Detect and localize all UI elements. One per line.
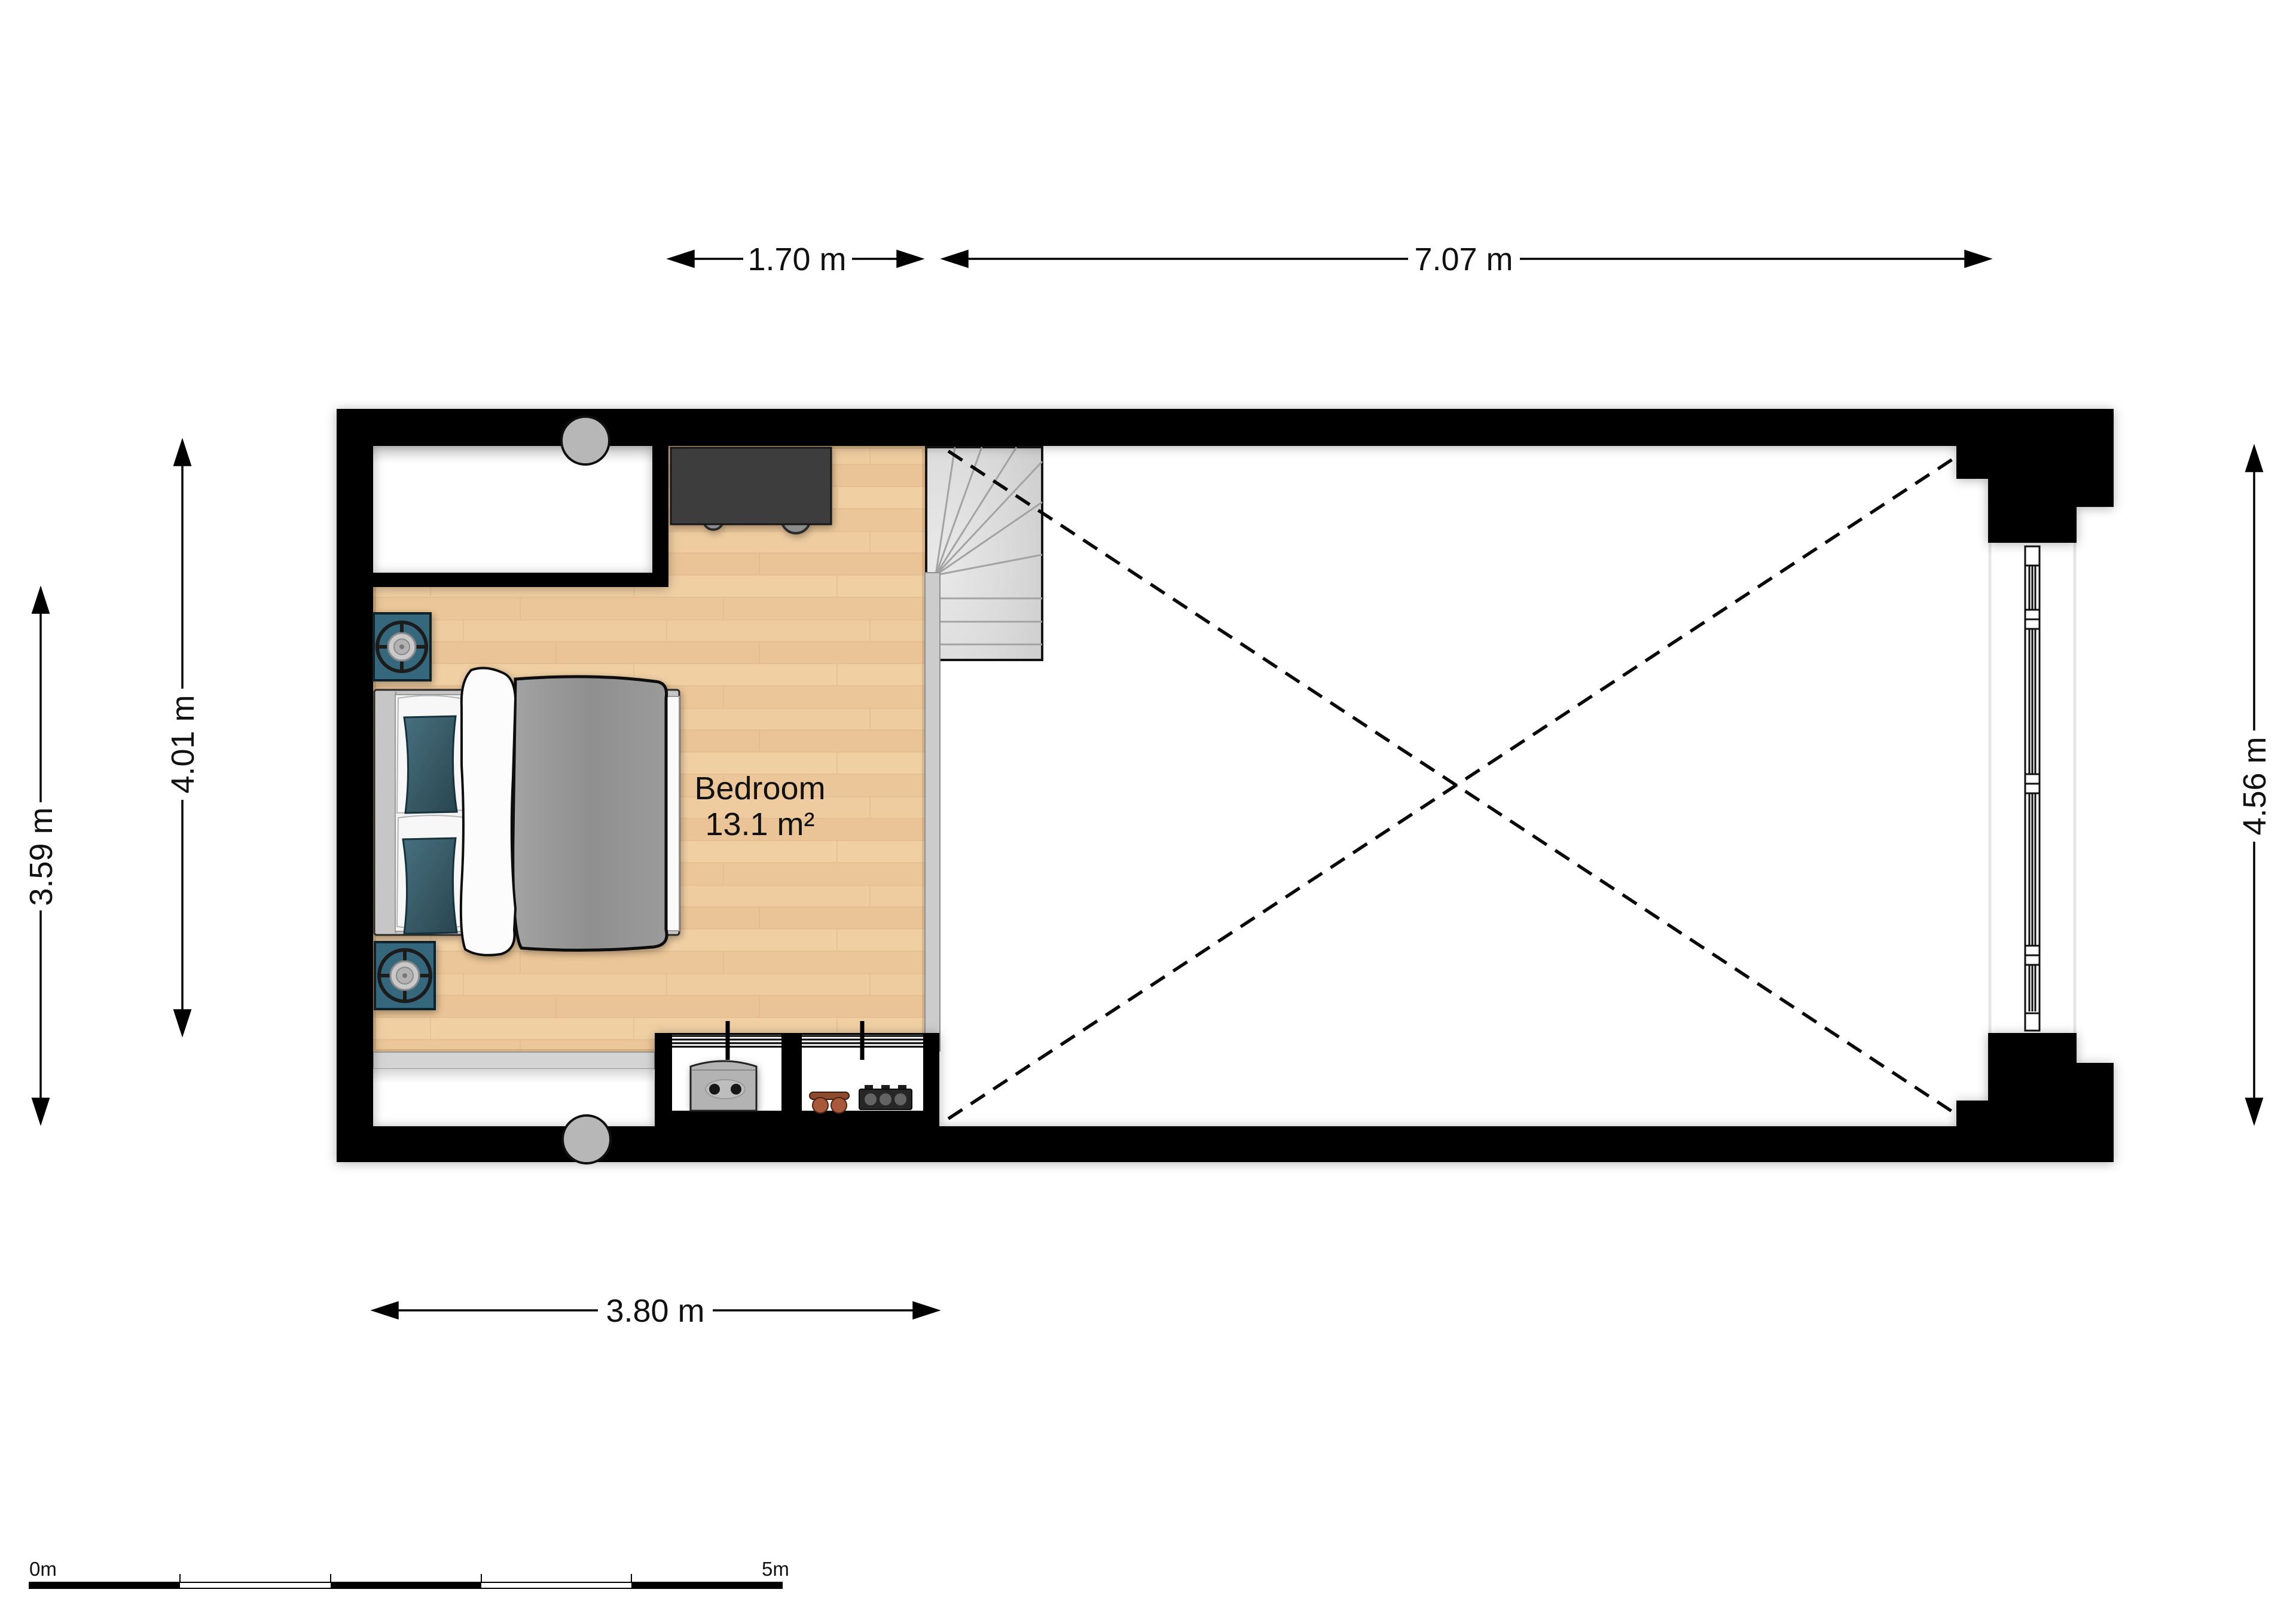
svg-text:0m: 0m (29, 1558, 57, 1580)
svg-text:4.56 m: 4.56 m (2237, 736, 2273, 835)
svg-text:13.1 m²: 13.1 m² (705, 806, 814, 842)
svg-text:4.01 m: 4.01 m (165, 695, 201, 793)
svg-text:Bedroom: Bedroom (694, 771, 825, 806)
svg-text:3.59 m: 3.59 m (23, 807, 59, 906)
svg-text:5m: 5m (762, 1558, 789, 1580)
svg-text:7.07 m: 7.07 m (1414, 242, 1513, 277)
svg-text:1.70 m: 1.70 m (747, 242, 846, 277)
svg-text:3.80 m: 3.80 m (606, 1293, 704, 1329)
